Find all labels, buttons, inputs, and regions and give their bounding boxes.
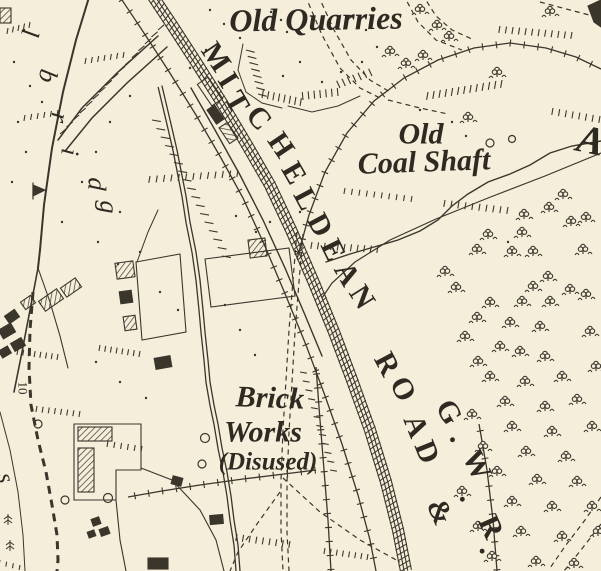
- label-plot-number: 10: [16, 382, 31, 395]
- map-stage: Old QuarriesOldCoal ShaftBrickWorks(Disu…: [0, 0, 601, 571]
- label-coal-shaft: Coal Shaft: [357, 143, 492, 181]
- road-name-letter: d: [82, 177, 111, 192]
- label-brick: Brick: [234, 380, 304, 415]
- map-canvas: Old QuarriesOldCoal ShaftBrickWorks(Disu…: [0, 0, 601, 571]
- road-name-letter: g: [95, 201, 124, 214]
- label-works: Works: [224, 416, 302, 449]
- label-disused: (Disused): [219, 449, 318, 476]
- label-old-quarries: Old Quarries: [229, 0, 403, 39]
